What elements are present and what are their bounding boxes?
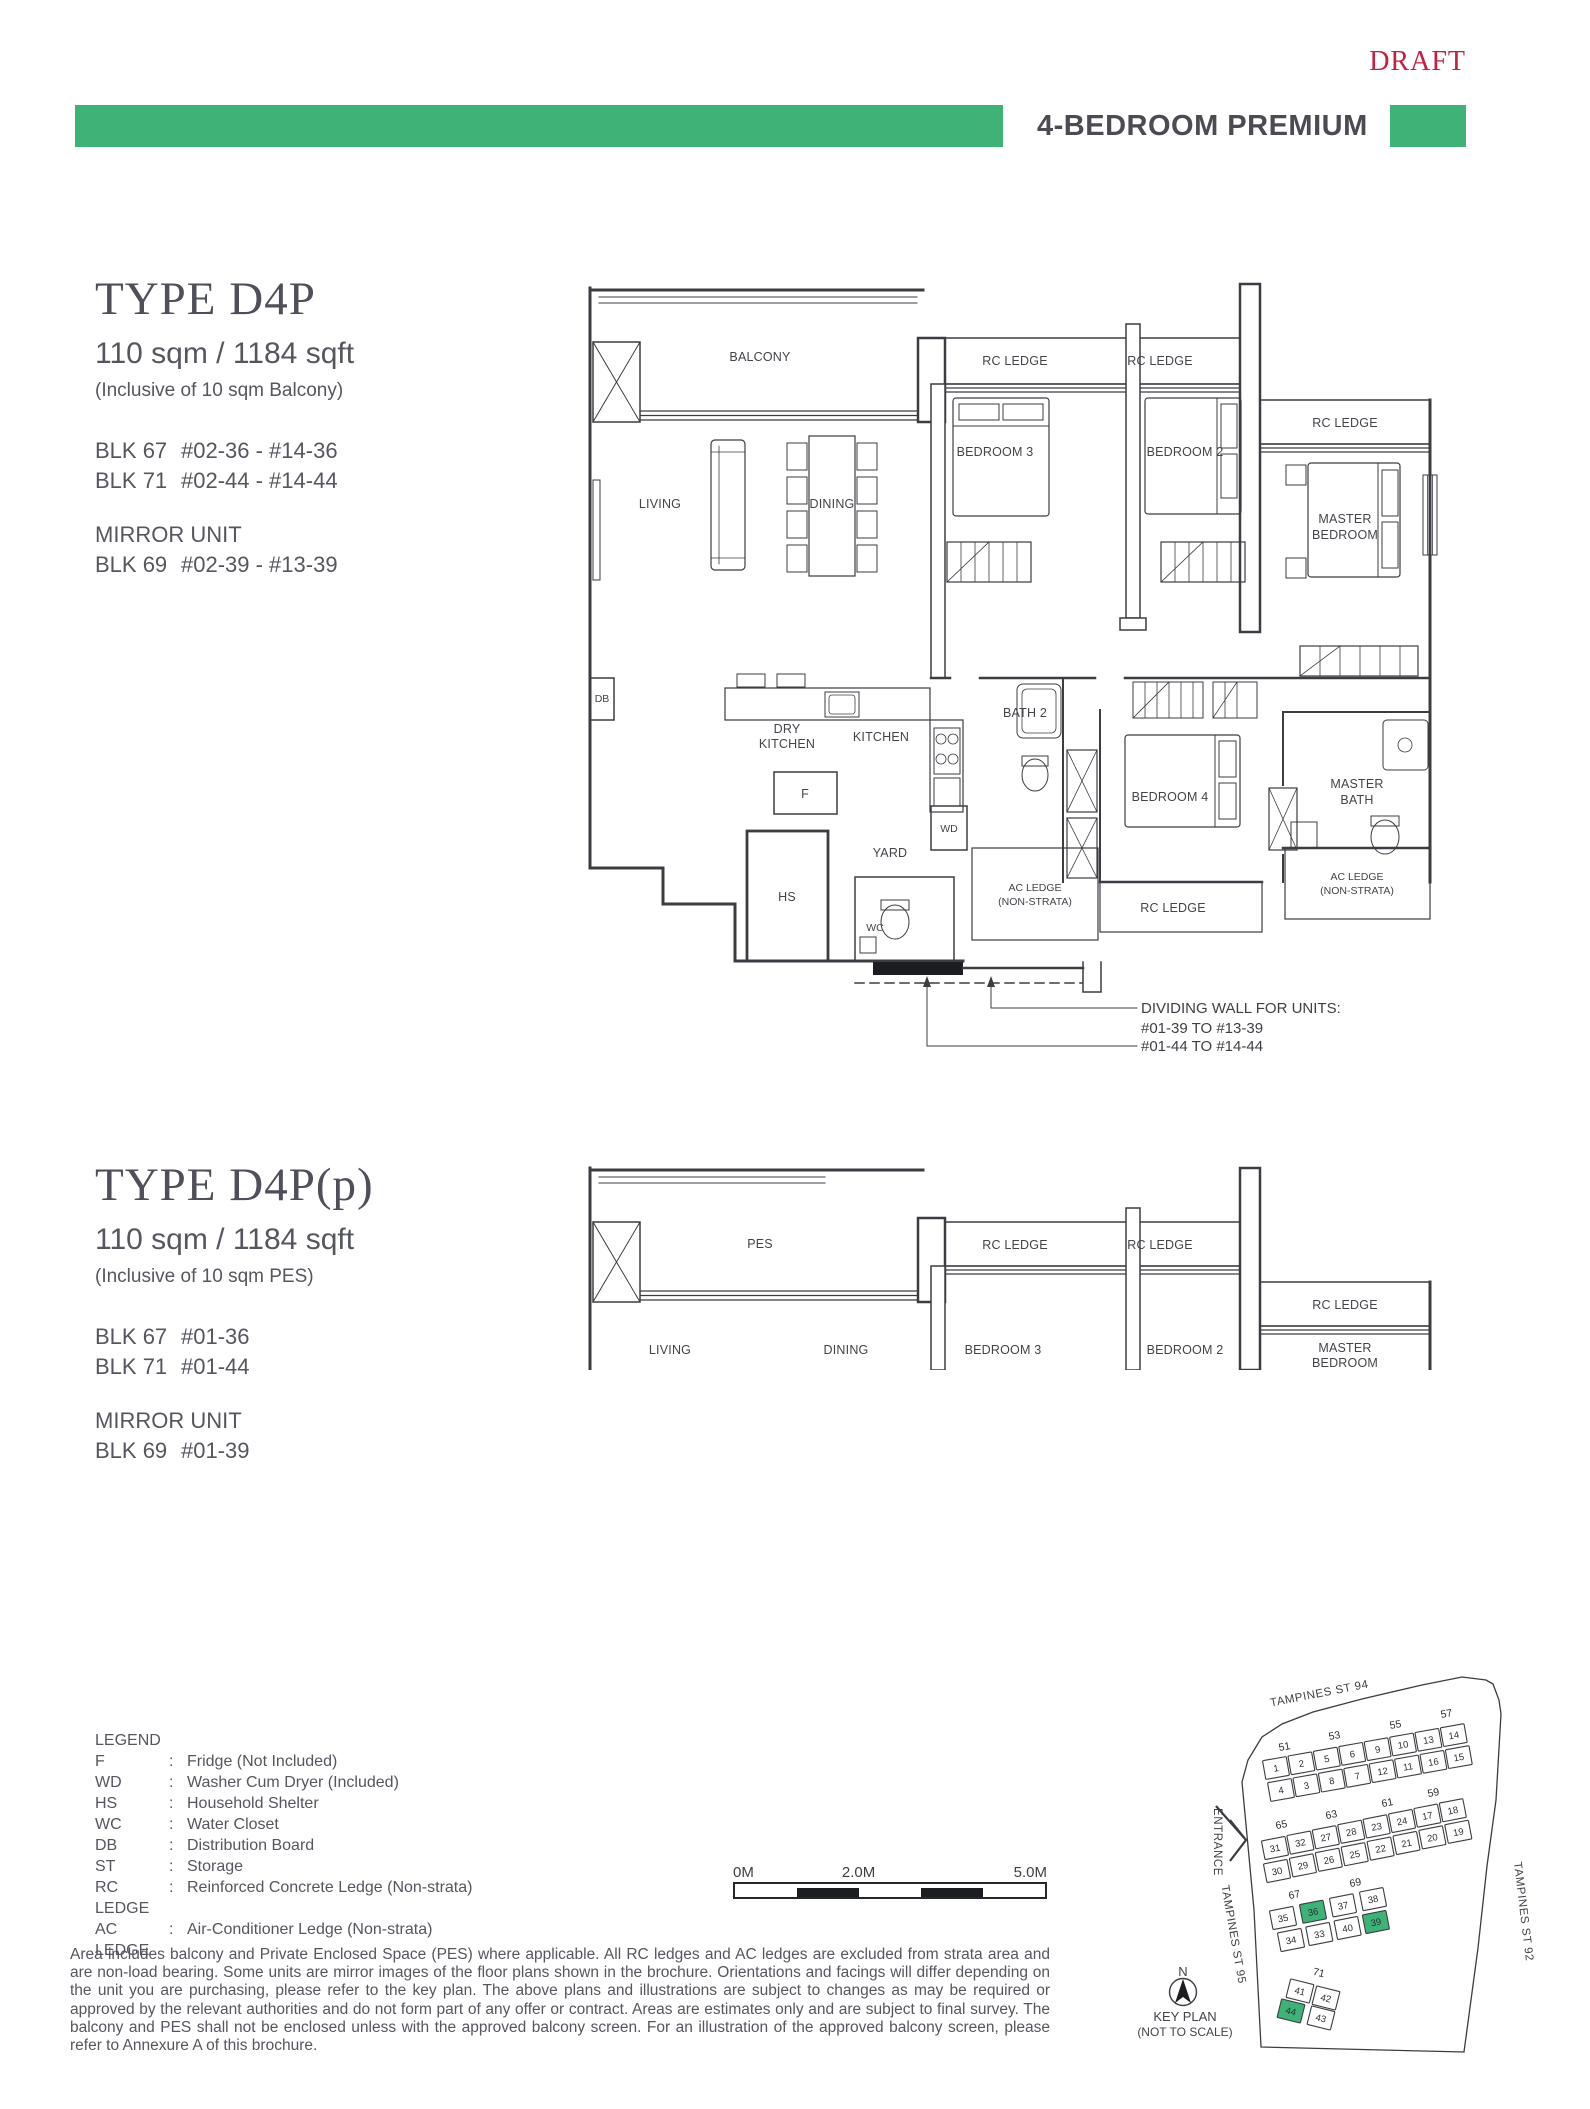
keyplan-block-number: 13 bbox=[1422, 1734, 1434, 1747]
room-label-dry-kitchen: KITCHEN bbox=[759, 737, 815, 751]
legend-row: DB:Distribution Board bbox=[95, 1835, 472, 1856]
unit-d4pp-info: TYPE D4P(p) 110 sqm / 1184 sqft (Inclusi… bbox=[95, 1158, 515, 1466]
legend-row: RC LEDGE:Reinforced Concrete Ledge (Non-… bbox=[95, 1877, 472, 1919]
keyplan-block-number: 31 bbox=[1269, 1843, 1281, 1856]
room-label-bedroom2: BEDROOM 2 bbox=[1147, 1343, 1224, 1357]
keyplan-block-label: 71 bbox=[1312, 1966, 1326, 1981]
keyplan-block-number: 14 bbox=[1448, 1730, 1460, 1743]
keyplan-block-number: 11 bbox=[1402, 1761, 1414, 1774]
block-row: BLK 71#02-44 - #14-44 bbox=[95, 466, 515, 496]
mirror-unit-label: MIRROR UNIT bbox=[95, 520, 515, 550]
unit-range: #01-39 bbox=[181, 1436, 250, 1466]
keyplan-block-number: 32 bbox=[1294, 1837, 1306, 1850]
legend-row: WC:Water Closet bbox=[95, 1814, 472, 1835]
room-label-pes: PES bbox=[747, 1237, 773, 1251]
room-label-dining: DINING bbox=[810, 497, 855, 511]
keyplan-block-label: 65 bbox=[1275, 1818, 1289, 1832]
unit-range: #02-44 - #14-44 bbox=[181, 466, 338, 496]
keyplan-block-number: 37 bbox=[1337, 1900, 1349, 1913]
keyplan-block-label: 53 bbox=[1328, 1729, 1342, 1743]
room-label-db: DB bbox=[595, 693, 610, 705]
legend-row: F:Fridge (Not Included) bbox=[95, 1751, 472, 1772]
room-label-rc-ledge: RC LEDGE bbox=[982, 354, 1048, 368]
keyplan-block-label: 67 bbox=[1288, 1888, 1302, 1902]
disclaimer-text: Area includes balcony and Private Enclos… bbox=[70, 1946, 1050, 2055]
keyplan-block-number: 18 bbox=[1447, 1805, 1459, 1818]
scale-bar: 0M 2.0M 5.0M bbox=[733, 1864, 1047, 1899]
keyplan-block-number: 16 bbox=[1427, 1756, 1439, 1769]
page-title: 4-BEDROOM PREMIUM bbox=[1037, 105, 1368, 147]
keyplan-block-number: 10 bbox=[1397, 1739, 1409, 1752]
keyplan-block-number: 33 bbox=[1313, 1929, 1325, 1942]
room-label-balcony: BALCONY bbox=[729, 350, 791, 364]
street-label-tampines-st-95: TAMPINES ST 95 bbox=[1218, 1884, 1247, 1985]
keyplan-block-label: 59 bbox=[1427, 1786, 1441, 1800]
keyplan-block-number: 15 bbox=[1453, 1752, 1465, 1765]
keyplan-block-label: 61 bbox=[1381, 1796, 1395, 1810]
room-label-wd: WD bbox=[940, 823, 958, 835]
room-label-dining: DINING bbox=[824, 1343, 869, 1357]
legend-row: ST:Storage bbox=[95, 1856, 472, 1877]
room-label-rc-ledge: RC LEDGE bbox=[1312, 416, 1378, 430]
room-label-ac-ledge: (NON-STRATA) bbox=[998, 896, 1072, 908]
header-banner-bar bbox=[75, 105, 1003, 147]
scale-bar-graphic bbox=[733, 1882, 1047, 1899]
legend: LEGEND F:Fridge (Not Included) WD:Washer… bbox=[95, 1730, 472, 1961]
street-label-tampines-st-94: TAMPINES ST 94 bbox=[1269, 1679, 1369, 1710]
keyplan-block-number: 24 bbox=[1396, 1816, 1408, 1829]
keyplan-block-label: 69 bbox=[1349, 1876, 1363, 1890]
block-row: BLK 67#01-36 bbox=[95, 1322, 515, 1352]
keyplan-block-number: 19 bbox=[1452, 1826, 1464, 1839]
room-label-rc-ledge: RC LEDGE bbox=[1127, 354, 1193, 368]
room-label-wc: WC bbox=[866, 922, 884, 934]
room-label-master-bedroom: MASTER bbox=[1318, 1341, 1371, 1355]
keyplan-block-number: 34 bbox=[1285, 1935, 1297, 1948]
unit-d4pp-blocks: BLK 67#01-36 BLK 71#01-44 bbox=[95, 1322, 515, 1382]
block-row: BLK 69#01-39 bbox=[95, 1436, 515, 1466]
dividing-wall-note: #01-44 TO #14-44 bbox=[1141, 1038, 1263, 1055]
scale-5m: 5.0M bbox=[1014, 1864, 1047, 1881]
keyplan-block-number: 27 bbox=[1320, 1832, 1332, 1845]
mirror-unit-label: MIRROR UNIT bbox=[95, 1406, 515, 1436]
keyplan-block-number: 40 bbox=[1342, 1923, 1354, 1936]
keyplan-caption: KEY PLAN bbox=[1153, 2009, 1216, 2024]
legend-title: LEGEND bbox=[95, 1730, 472, 1751]
room-label-fridge: F bbox=[801, 787, 809, 801]
keyplan-block-number: 25 bbox=[1349, 1849, 1361, 1862]
unit-range: #02-39 - #13-39 bbox=[181, 550, 338, 580]
keyplan-block-number: 21 bbox=[1400, 1838, 1412, 1851]
floor-plan-d4p: BALCONY RC LEDGE RC LEDGE RC LEDGE BEDRO… bbox=[585, 280, 1445, 1070]
brochure-page: DRAFT 4-BEDROOM PREMIUM TYPE D4P 110 sqm… bbox=[0, 0, 1590, 2109]
keyplan-caption: (NOT TO SCALE) bbox=[1137, 2025, 1232, 2039]
scale-0m: 0M bbox=[733, 1864, 754, 1881]
block-row: BLK 69#02-39 - #13-39 bbox=[95, 550, 515, 580]
scale-bar-labels: 0M 2.0M 5.0M bbox=[733, 1864, 1047, 1882]
room-label-bedroom3: BEDROOM 3 bbox=[957, 445, 1034, 459]
floor-plan-d4pp: PES RC LEDGE RC LEDGE RC LEDGE LIVING DI… bbox=[585, 1160, 1445, 1370]
room-label-kitchen: KITCHEN bbox=[853, 730, 909, 744]
keyplan-block-number: 23 bbox=[1371, 1821, 1383, 1834]
room-label-master-bedroom: BEDROOM bbox=[1312, 1356, 1378, 1370]
unit-d4p-title: TYPE D4P bbox=[95, 272, 515, 326]
legend-row: WD:Washer Cum Dryer (Included) bbox=[95, 1772, 472, 1793]
block-number: BLK 67 bbox=[95, 1322, 181, 1352]
block-number: BLK 69 bbox=[95, 550, 181, 580]
block-number: BLK 69 bbox=[95, 1436, 181, 1466]
room-label-rc-ledge: RC LEDGE bbox=[1312, 1298, 1378, 1312]
svg-text:N: N bbox=[1178, 1964, 1187, 1979]
room-label-master-bath: MASTER bbox=[1330, 777, 1383, 791]
keyplan-block-label: 55 bbox=[1389, 1718, 1403, 1732]
block-row: BLK 67#02-36 - #14-36 bbox=[95, 436, 515, 466]
street-label-tampines-st-92: TAMPINES ST 92 bbox=[1511, 1861, 1535, 1962]
room-label-master-bath: BATH bbox=[1340, 793, 1373, 807]
room-label-bedroom2: BEDROOM 2 bbox=[1147, 445, 1224, 459]
keyplan-block-number: 26 bbox=[1323, 1854, 1335, 1867]
room-label-dry-kitchen: DRY bbox=[774, 722, 801, 736]
header-banner-square bbox=[1390, 105, 1466, 147]
unit-d4p-info: TYPE D4P 110 sqm / 1184 sqft (Inclusive … bbox=[95, 272, 515, 580]
room-label-ac-ledge: (NON-STRATA) bbox=[1320, 885, 1394, 897]
block-row: BLK 71#01-44 bbox=[95, 1352, 515, 1382]
keyplan-block-label: 57 bbox=[1440, 1707, 1454, 1721]
legend-row: HS:Household Shelter bbox=[95, 1793, 472, 1814]
room-label-bedroom3: BEDROOM 3 bbox=[965, 1343, 1042, 1357]
keyplan-buildings: 1256910131443871211161551535557313227282… bbox=[1261, 1707, 1472, 2030]
keyplan-block-number: 12 bbox=[1377, 1766, 1389, 1779]
keyplan-block-number: 36 bbox=[1307, 1906, 1319, 1919]
keyplan-block-number: 38 bbox=[1367, 1894, 1379, 1907]
entrance-label: ENTRANCE bbox=[1211, 1808, 1223, 1876]
unit-d4pp-area-note: (Inclusive of 10 sqm PES) bbox=[95, 1266, 515, 1288]
room-label-ac-ledge: AC LEDGE bbox=[1330, 871, 1383, 883]
keyplan-block-number: 39 bbox=[1370, 1917, 1382, 1930]
keyplan-block-number: 22 bbox=[1375, 1843, 1387, 1856]
keyplan-block-label: 63 bbox=[1325, 1808, 1339, 1822]
block-number: BLK 71 bbox=[95, 1352, 181, 1382]
room-label-rc-ledge: RC LEDGE bbox=[1127, 1238, 1193, 1252]
dividing-wall-note: DIVIDING WALL FOR UNITS: bbox=[1141, 1000, 1341, 1017]
key-plan: TAMPINES ST 94 TAMPINES ST 95 TAMPINES S… bbox=[1130, 1640, 1590, 2060]
dividing-wall-note: #01-39 TO #13-39 bbox=[1141, 1020, 1263, 1037]
keyplan-block-number: 30 bbox=[1271, 1866, 1283, 1879]
block-number: BLK 67 bbox=[95, 436, 181, 466]
north-compass-icon: N bbox=[1170, 1964, 1197, 2006]
keyplan-block-number: 29 bbox=[1297, 1860, 1309, 1873]
room-label-living: LIVING bbox=[649, 1343, 691, 1357]
room-label-yard: YARD bbox=[873, 846, 908, 860]
draft-watermark: DRAFT bbox=[1340, 46, 1466, 78]
keyplan-block-number: 28 bbox=[1345, 1826, 1357, 1839]
unit-d4p-blocks: BLK 67#02-36 - #14-36 BLK 71#02-44 - #14… bbox=[95, 436, 515, 496]
room-label-bath2: BATH 2 bbox=[1003, 706, 1047, 720]
unit-range: #01-44 bbox=[181, 1352, 250, 1382]
room-label-master-bedroom: MASTER bbox=[1318, 512, 1371, 526]
unit-range: #02-36 - #14-36 bbox=[181, 436, 338, 466]
room-label-rc-ledge: RC LEDGE bbox=[982, 1238, 1048, 1252]
room-label-master-bedroom: BEDROOM bbox=[1312, 528, 1378, 542]
room-label-living: LIVING bbox=[639, 497, 681, 511]
unit-d4p-area: 110 sqm / 1184 sqft bbox=[95, 337, 515, 371]
room-label-ac-ledge: AC LEDGE bbox=[1008, 882, 1061, 894]
keyplan-block-number: 35 bbox=[1277, 1913, 1289, 1926]
keyplan-block-number: 20 bbox=[1426, 1832, 1438, 1845]
room-label-hs: HS bbox=[778, 890, 796, 904]
unit-d4pp-title: TYPE D4P(p) bbox=[95, 1158, 515, 1212]
room-label-rc-ledge: RC LEDGE bbox=[1140, 901, 1206, 915]
block-number: BLK 71 bbox=[95, 466, 181, 496]
scale-2m: 2.0M bbox=[842, 1864, 875, 1881]
room-label-bedroom4: BEDROOM 4 bbox=[1132, 790, 1209, 804]
unit-d4pp-area: 110 sqm / 1184 sqft bbox=[95, 1223, 515, 1257]
unit-range: #01-36 bbox=[181, 1322, 250, 1352]
unit-d4p-area-note: (Inclusive of 10 sqm Balcony) bbox=[95, 380, 515, 402]
keyplan-block-number: 17 bbox=[1421, 1810, 1433, 1823]
keyplan-block-label: 51 bbox=[1278, 1740, 1292, 1754]
